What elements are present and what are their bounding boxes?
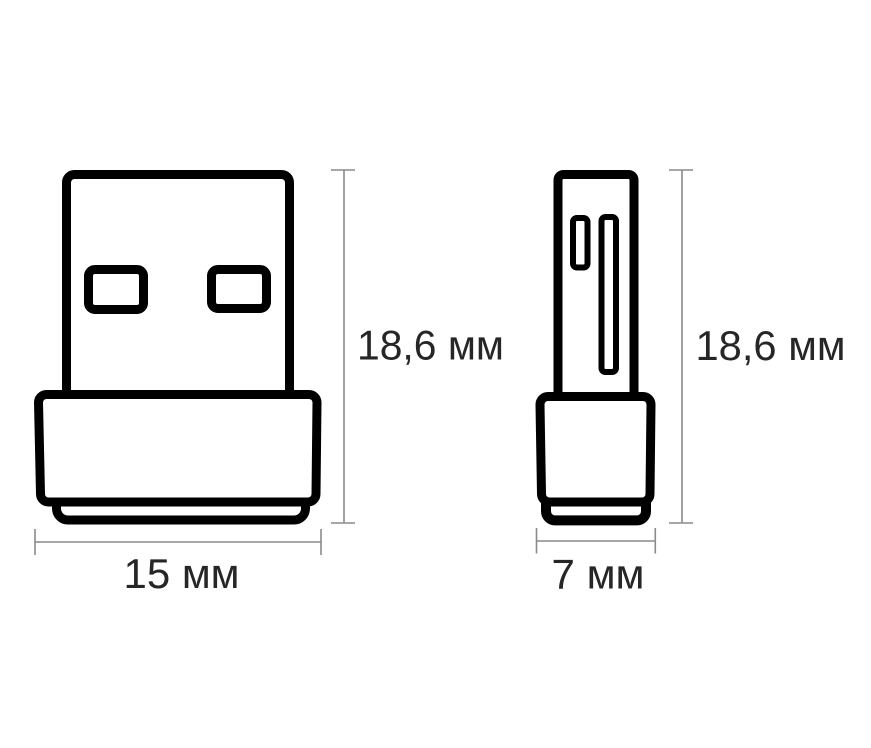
svg-text:18,6 мм: 18,6 мм [357, 322, 504, 369]
svg-text:7 мм: 7 мм [552, 551, 645, 598]
svg-text:15 мм: 15 мм [124, 550, 240, 597]
svg-text:18,6 мм: 18,6 мм [696, 322, 846, 369]
